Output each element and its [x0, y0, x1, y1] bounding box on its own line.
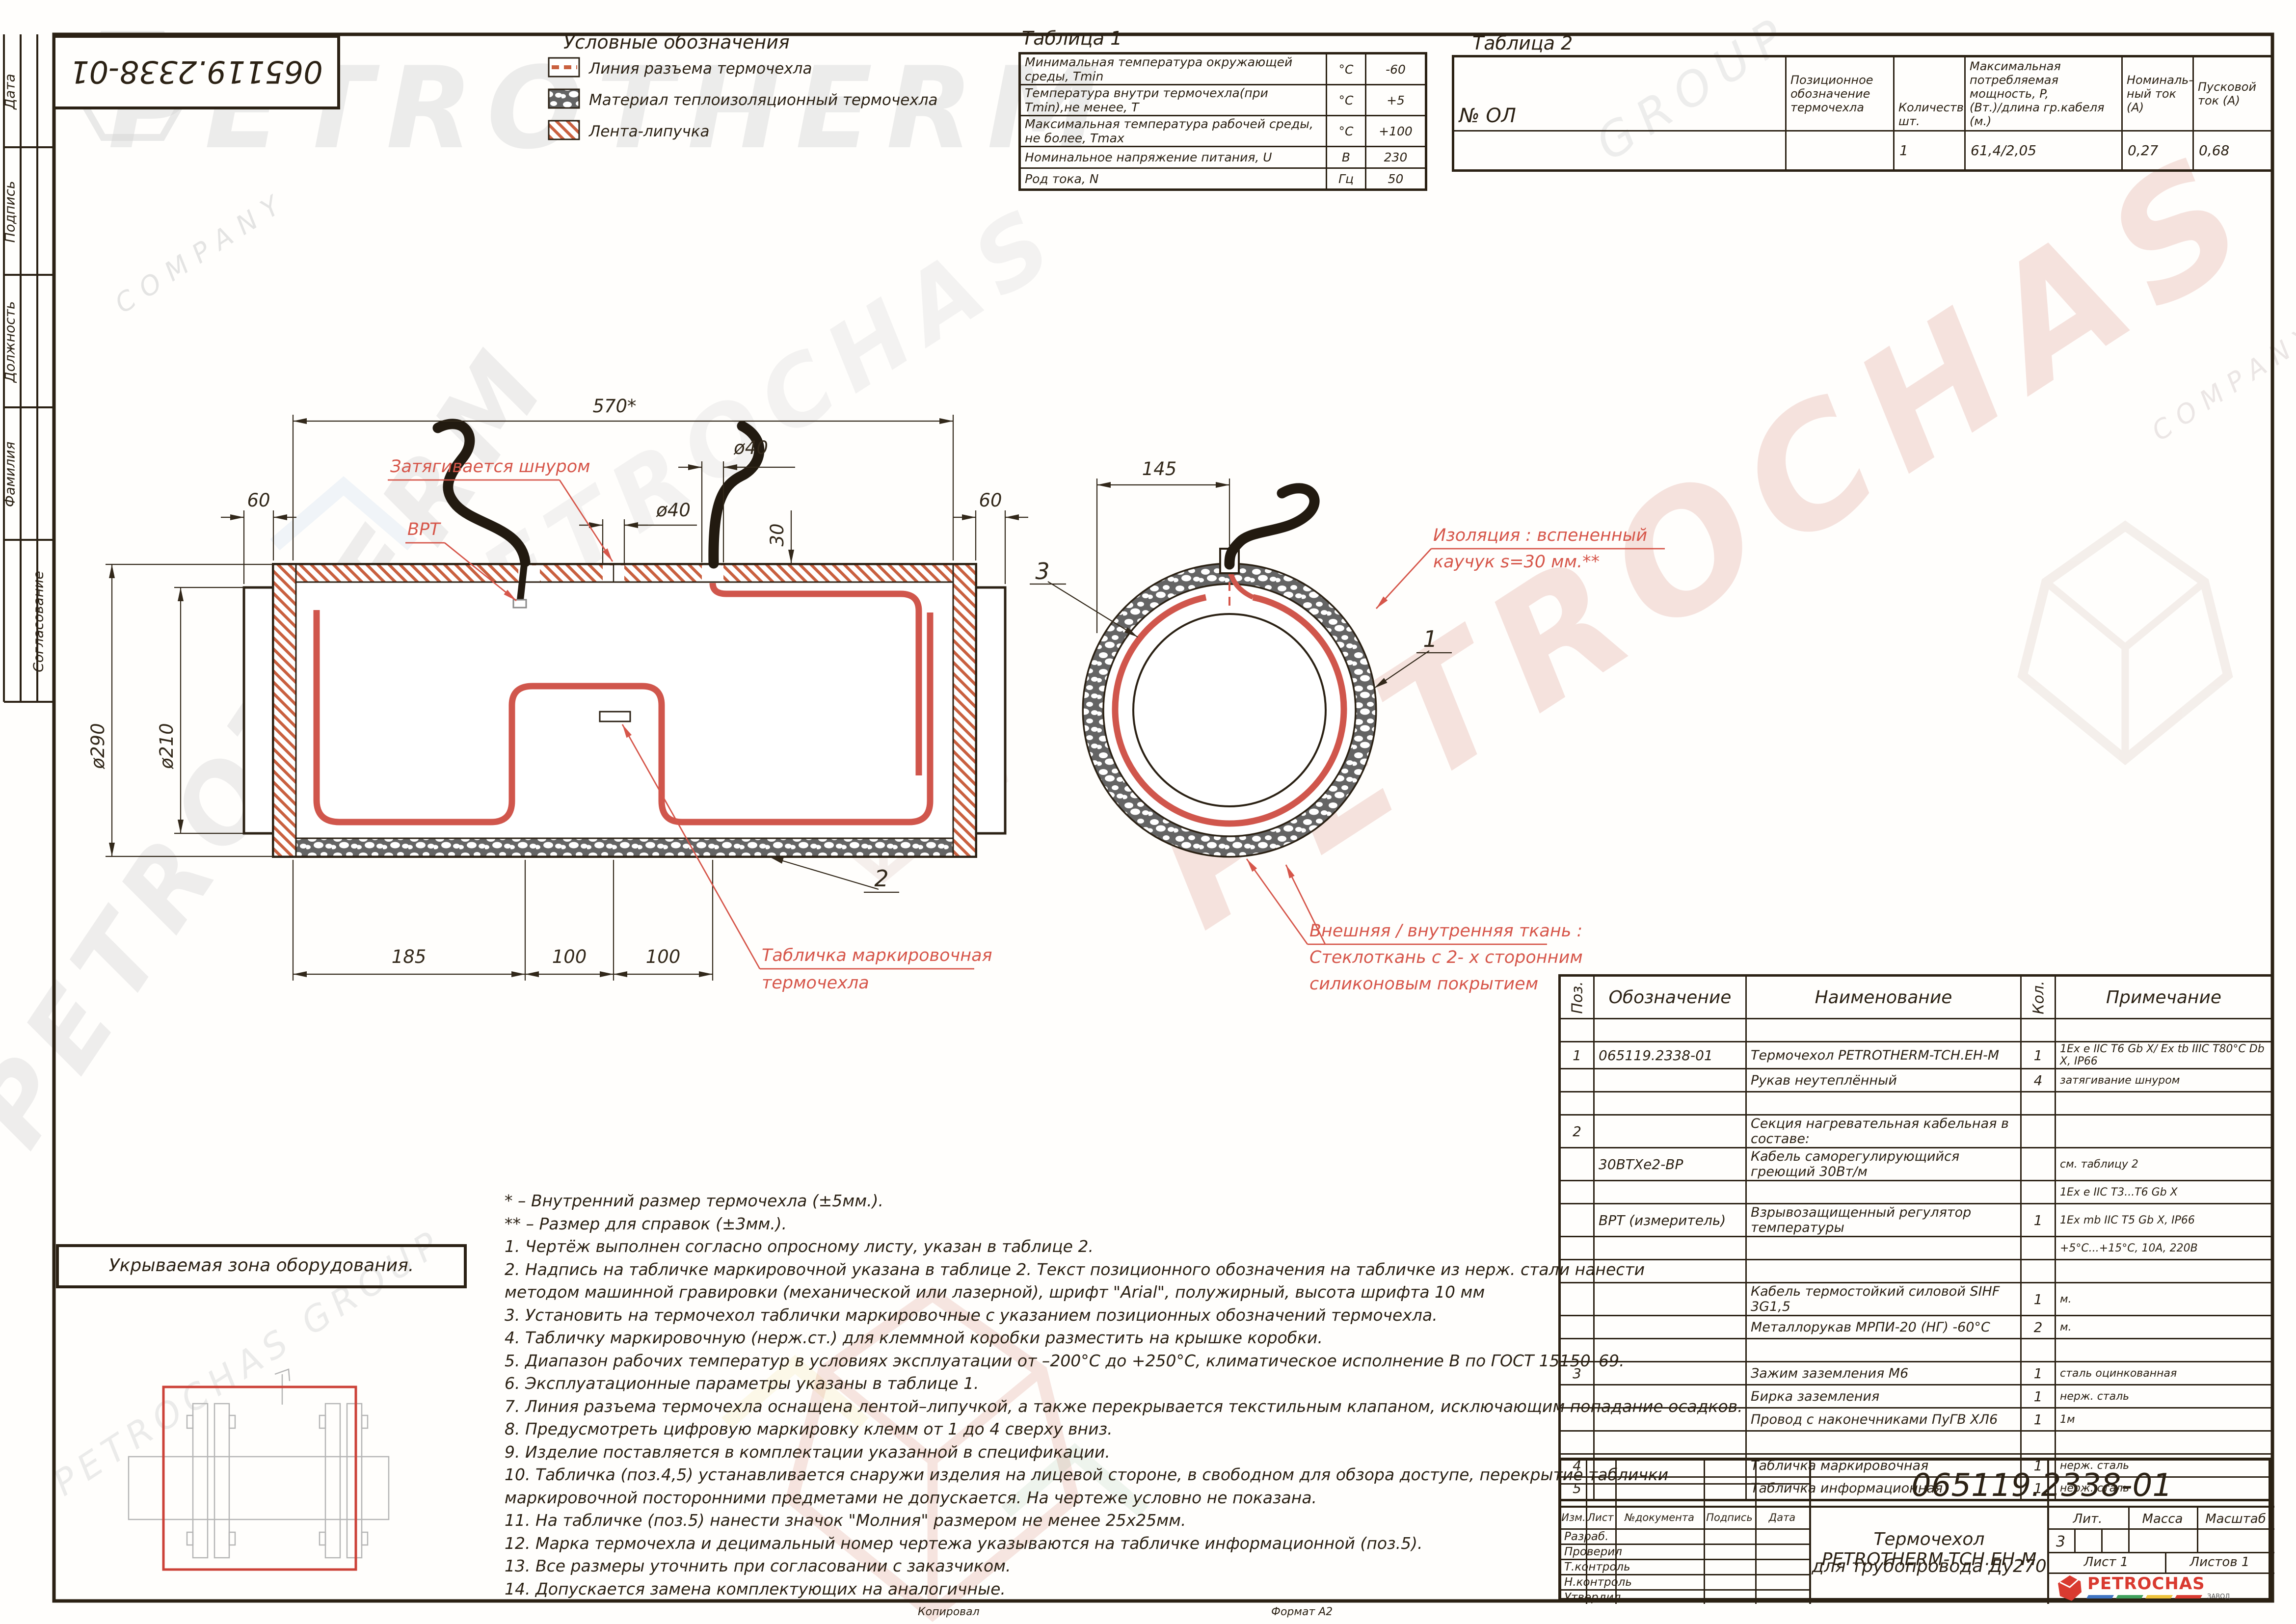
- tb-sheets: Листов 1: [2165, 1555, 2274, 1570]
- spec-row: Бирка заземления 1 нерж. сталь: [1560, 1385, 2273, 1408]
- tb-row-ncontrol: Н.контроль: [1564, 1576, 1632, 1589]
- spec-note: м.: [2056, 1283, 2273, 1316]
- spec-qty: 1: [2021, 1362, 2056, 1385]
- spec-qty: 1: [2021, 1408, 2056, 1431]
- spec-note: 1Ex mb IIC T5 Gb X, IP66: [2056, 1204, 2273, 1237]
- table1-value: -60: [1366, 53, 1426, 85]
- note-line: ** – Размер для справок (±3мм.).: [505, 1213, 1565, 1236]
- spec-note: [2056, 1115, 2273, 1148]
- legend-item-velcro: Лента-липучка: [589, 123, 710, 140]
- logo-dash-yellow: [2145, 1595, 2173, 1598]
- table2-header-current: Номиналь- ный ток (А): [2122, 56, 2193, 131]
- drawing-sheet: PETROTHERM Pt COMPANY PETROTHERM PETROCH…: [0, 0, 2296, 1624]
- spec-designation: [1594, 1316, 1746, 1339]
- margin-label-name: Фамилия: [2, 421, 18, 529]
- spec-name: [1746, 1260, 2021, 1283]
- spec-qty: [2021, 1339, 2056, 1362]
- spec-qty: 2: [2021, 1316, 2056, 1339]
- spec-header-note: Примечание: [2056, 976, 2273, 1019]
- margin-label-signature: Подпись: [2, 158, 18, 266]
- table1-unit: В: [1327, 147, 1366, 168]
- annotation-fabric-1: Внешняя / внутренняя ткань :: [1309, 921, 1582, 941]
- spec-qty: 1: [2021, 1385, 2056, 1408]
- dim-collar-left: 60: [247, 490, 270, 511]
- spec-name: Кабель саморегулирующийся греющий 30Вт/м: [1746, 1148, 2021, 1181]
- spec-note: [2056, 1092, 2273, 1115]
- note-line: маркировочной посторонними предметами не…: [505, 1487, 1565, 1510]
- spec-row: 1 065119.2338-01 Термочехол PETROTHERM-T…: [1560, 1042, 2273, 1069]
- spec-qty: 4: [2021, 1069, 2056, 1092]
- spec-name: [1746, 1181, 2021, 1204]
- dim-outer-dia: ø290: [87, 723, 108, 769]
- table1-row: Максимальная температура рабочей среды, …: [1020, 116, 1426, 147]
- table1-unit: Гц: [1327, 168, 1366, 190]
- table1-value: +100: [1366, 116, 1426, 147]
- tb-doc-number: 065119.2338-01: [1809, 1467, 2274, 1504]
- legend-title: Условные обозначения: [563, 31, 790, 53]
- tb-col-izm: Изм.: [1561, 1512, 1586, 1523]
- table1-param: Род тока, N: [1020, 168, 1327, 190]
- note-line: 10. Табличка (поз.4,5) устанавливается с…: [505, 1464, 1565, 1487]
- tb-lit-value: 3: [2047, 1533, 2074, 1550]
- table1-row: Род тока, N Гц 50: [1020, 168, 1426, 190]
- spec-designation: [1594, 1069, 1746, 1092]
- spec-name: Взрывозащищенный регулятор температуры: [1746, 1204, 2021, 1237]
- spec-pos: [1560, 1204, 1594, 1237]
- dim-length: 570*: [592, 396, 636, 417]
- spec-pos: [1560, 1181, 1594, 1204]
- watermark-gem: [2023, 526, 2228, 759]
- spec-designation: 30ВТХе2-ВР: [1594, 1148, 1746, 1181]
- covered-zone-diagram: [57, 1246, 465, 1570]
- spec-pos: 1: [1560, 1042, 1594, 1069]
- note-line: * – Внутренний размер термочехла (±5мм.)…: [505, 1190, 1565, 1213]
- spec-pos: 2: [1560, 1115, 1594, 1148]
- spec-designation: [1594, 1283, 1746, 1316]
- vrt-probe-lead: [520, 564, 524, 600]
- spec-qty: 1: [2021, 1283, 2056, 1316]
- spec-name: Кабель термостойкий силовой SIHF 3G1,5: [1746, 1283, 2021, 1316]
- spec-qty: [2021, 1260, 2056, 1283]
- table1-row: Номинальное напряжение питания, U В 230: [1020, 147, 1426, 168]
- cover-body: [273, 564, 976, 856]
- spec-row: Кабель термостойкий силовой SIHF 3G1,5 1…: [1560, 1283, 2273, 1316]
- spec-note: затягивание шнуром: [2056, 1069, 2273, 1092]
- spec-header-designation: Обозначение: [1594, 976, 1746, 1019]
- spec-row: 1Ex e IIC T3...T6 Gb X: [1560, 1181, 2273, 1204]
- legend-item-insulation: Материал теплоизоляционный термочехла: [589, 91, 938, 109]
- dim-seg3: 100: [646, 946, 681, 967]
- velcro-band: [273, 564, 976, 582]
- tb-col-sign: Подпись: [1704, 1512, 1755, 1523]
- dim-gap: ø40: [656, 500, 691, 521]
- doc-number-top: 065119.2338-01: [54, 36, 339, 108]
- spec-name: [1746, 1237, 2021, 1260]
- note-line: 5. Диапазон рабочих температур в условия…: [505, 1350, 1565, 1373]
- spec-pos: 3: [1560, 1362, 1594, 1385]
- note-line: 11. На табличке (поз.5) нанести значок "…: [505, 1509, 1565, 1532]
- spec-name: Термочехол PETROTHERM-TCH.EH-М: [1746, 1042, 2021, 1069]
- note-line: 1. Чертёж выполнен согласно опросному ли…: [505, 1235, 1565, 1258]
- table2-header-designation: Позиционное обозначение термочехла: [1786, 56, 1894, 131]
- spec-pos: [1560, 1431, 1594, 1454]
- tb-row-approved: Утвердил: [1564, 1591, 1621, 1604]
- spec-note: 1м: [2056, 1408, 2273, 1431]
- tb-row-developed: Разраб.: [1564, 1530, 1608, 1543]
- annotation-insulation-1: Изоляция : вспененный: [1433, 526, 1647, 545]
- spec-qty: [2021, 1148, 2056, 1181]
- table1-value: 230: [1366, 147, 1426, 168]
- table2-header-start-current: Пусковой ток (А): [2193, 56, 2273, 131]
- legend-swatches: [549, 58, 579, 139]
- footer-copied: Копировал: [918, 1606, 980, 1618]
- spec-pos: [1560, 1069, 1594, 1092]
- dim-hole-offset: 30: [767, 523, 788, 546]
- table2: № ОЛ Позиционное обозначение термочехла …: [1452, 55, 2274, 172]
- legend-item-split-line: Линия разъема термочехла: [589, 60, 812, 78]
- annotation-cord: Затягивается шнуром: [390, 457, 590, 477]
- balloon-1: 1: [1423, 626, 1437, 652]
- spec-row: Провод с наконечниками ПуГВ ХЛ6 1 1м: [1560, 1408, 2273, 1431]
- spec-qty: [2021, 1092, 2056, 1115]
- spec-designation: 065119.2338-01: [1594, 1042, 1746, 1069]
- spec-pos: [1560, 1408, 1594, 1431]
- spec-qty: [2021, 1019, 2056, 1042]
- legend-insulation-swatch: [549, 89, 579, 108]
- spec-name: Металлорукав МРПИ-20 (НГ) -60°С: [1746, 1316, 2021, 1339]
- spec-pos: [1560, 1237, 1594, 1260]
- spec-name: Рукав неутеплённый: [1746, 1069, 2021, 1092]
- tb-scale-label: Масштаб: [2197, 1512, 2274, 1526]
- left-end-velcro: [273, 564, 296, 856]
- spec-header-qty: Кол.: [2021, 976, 2056, 1019]
- annotation-plate-1: Табличка маркировочная: [762, 946, 992, 965]
- spec-note: [2056, 1260, 2273, 1283]
- spec-name: Зажим заземления М6: [1746, 1362, 2021, 1385]
- spec-qty: [2021, 1181, 2056, 1204]
- spec-note: см. таблицу 2: [2056, 1148, 2273, 1181]
- insulation-band: [296, 838, 953, 856]
- spec-name: [1746, 1092, 2021, 1115]
- vrt-sensor-tip: [513, 600, 526, 608]
- spec-name: [1746, 1431, 2021, 1454]
- spec-qty: [2021, 1115, 2056, 1148]
- table2-cell-start-current: 0,68: [2193, 131, 2273, 171]
- table2-title: Таблица 2: [1472, 32, 1573, 54]
- spec-pos: [1560, 1385, 1594, 1408]
- logo-sub: ЗАВОД: [2207, 1593, 2230, 1600]
- tb-row-checked: Проверил: [1564, 1545, 1622, 1558]
- note-line: 12. Марка термочехла и децимальный номер…: [505, 1532, 1565, 1555]
- tb-sheet: Лист 1: [2047, 1555, 2165, 1570]
- tb-title-line2: для трубопровода Ду270: [1811, 1556, 2047, 1576]
- spec-row: 3 Зажим заземления М6 1 сталь оцинкованн…: [1560, 1362, 2273, 1385]
- dim-collar-right: 60: [979, 490, 1002, 511]
- table1: Минимальная температура окружающей среды…: [1018, 52, 1427, 191]
- tb-lit-label: Лит.: [2047, 1512, 2128, 1526]
- spec-pos: [1560, 1260, 1594, 1283]
- tb-row-tcontrol: Т.контроль: [1564, 1561, 1630, 1573]
- note-line: 14. Допускается замена комплектующих на …: [505, 1578, 1565, 1601]
- annotation-plate-2: термочехла: [762, 973, 869, 993]
- right-end-velcro: [953, 564, 976, 856]
- spec-qty: 1: [2021, 1204, 2056, 1237]
- spec-pos: [1560, 1339, 1594, 1362]
- table1-unit: °С: [1327, 116, 1366, 147]
- logo-dash-blue: [2086, 1595, 2114, 1598]
- spec-pos: [1560, 1148, 1594, 1181]
- note-line: 13. Все размеры уточнить при согласовани…: [505, 1555, 1565, 1578]
- left-sleeve: [244, 587, 273, 833]
- spec-name: Секция нагревательная кабельная в состав…: [1746, 1115, 2021, 1148]
- margin-label-approval: Согласование: [30, 548, 47, 695]
- spec-designation: [1594, 1385, 1746, 1408]
- spec-row: 30ВТХе2-ВР Кабель саморегулирующийся гре…: [1560, 1148, 2273, 1181]
- spec-name: Бирка заземления: [1746, 1385, 2021, 1408]
- spec-designation: ВРТ (измеритель): [1594, 1204, 1746, 1237]
- table1-value: 50: [1366, 168, 1426, 190]
- spec-row: ВРТ (измеритель) Взрывозащищенный регуля…: [1560, 1204, 2273, 1237]
- tb-col-doc: №документа: [1615, 1512, 1704, 1523]
- spec-name: [1746, 1019, 2021, 1042]
- note-line: 9. Изделие поставляется в комплектации у…: [505, 1441, 1565, 1464]
- spec-qty: [2021, 1237, 2056, 1260]
- footer-format: Формат А2: [1271, 1606, 1333, 1618]
- table1-unit: °С: [1327, 53, 1366, 85]
- spec-designation: [1594, 1181, 1746, 1204]
- spec-note: м.: [2056, 1316, 2273, 1339]
- table2-cell-designation: [1786, 131, 1894, 171]
- spec-row: +5°С...+15°С, 10А, 220В: [1560, 1237, 2273, 1260]
- spec-designation: [1594, 1019, 1746, 1042]
- spec-row: [1560, 1260, 2273, 1283]
- tb-col-date: Дата: [1755, 1512, 1809, 1523]
- spec-designation: [1594, 1092, 1746, 1115]
- spec-designation: [1594, 1362, 1746, 1385]
- table1-value: +5: [1366, 85, 1426, 116]
- tb-col-list: Лист: [1586, 1512, 1615, 1523]
- marking-plate: [600, 712, 630, 721]
- spec-note: 1Ex e IIC T3...T6 Gb X: [2056, 1181, 2273, 1204]
- table2-header-power: Максимальная потребляемая мощность, P, (…: [1965, 56, 2122, 131]
- spec-qty: [2021, 1431, 2056, 1454]
- spec-name: Провод с наконечниками ПуГВ ХЛ6: [1746, 1408, 2021, 1431]
- balloon-3: 3: [1035, 558, 1049, 585]
- annotation-vrt: ВРТ: [407, 520, 441, 539]
- table1-row: Минимальная температура окружающей среды…: [1020, 53, 1426, 85]
- annotation-insulation-2: каучук s=30 мм.**: [1433, 552, 1600, 572]
- note-line: 3. Установить на термочехол таблички мар…: [505, 1304, 1565, 1327]
- table1-unit: °С: [1327, 85, 1366, 116]
- margin-label-position: Должность: [2, 288, 18, 396]
- logo-dash-green: [2116, 1595, 2143, 1598]
- table2-row-label: № ОЛ: [1453, 56, 1786, 131]
- spec-designation: [1594, 1115, 1746, 1148]
- spec-table: Поз. Обозначение Наименование Кол. Приме…: [1558, 974, 2274, 1501]
- spec-row: Металлорукав МРПИ-20 (НГ) -60°С 2 м.: [1560, 1316, 2273, 1339]
- note-line: 7. Линия разъема термочехла оснащена лен…: [505, 1395, 1565, 1418]
- table2-cell-current: 0,27: [2122, 131, 2193, 171]
- table2-cell-ol: [1453, 131, 1786, 171]
- note-line: 6. Эксплуатационные параметры указаны в …: [505, 1372, 1565, 1395]
- spec-designation: [1594, 1260, 1746, 1283]
- spec-designation: [1594, 1339, 1746, 1362]
- spec-pos: [1560, 1019, 1594, 1042]
- covered-zone-title: Укрываемая зона оборудования.: [57, 1255, 465, 1276]
- spec-qty: 1: [2021, 1042, 2056, 1069]
- margin-label-date: Дата: [2, 38, 18, 146]
- spec-row: Рукав неутеплённый 4 затягивание шнуром: [1560, 1069, 2273, 1092]
- legend-velcro-swatch: [549, 121, 579, 139]
- petrochas-gem-icon: [2057, 1574, 2082, 1602]
- spec-designation: [1594, 1237, 1746, 1260]
- spec-designation: [1594, 1408, 1746, 1431]
- spec-row: [1560, 1431, 2273, 1454]
- table1-param: Температура внутри термочехла(при Tmin),…: [1020, 85, 1327, 116]
- spec-note: 1Ex e IIC T6 Gb X/ Ex tb IIIC T80°C Db X…: [2056, 1042, 2273, 1069]
- spec-note: [2056, 1339, 2273, 1362]
- balloon-2: 2: [874, 865, 888, 892]
- dim-seg2: 100: [552, 946, 587, 967]
- table2-header-qty: Количество, шт.: [1894, 56, 1965, 131]
- spec-row: [1560, 1339, 2273, 1362]
- table2-cell-power: 61,4/2,05: [1965, 131, 2122, 171]
- spec-designation: [1594, 1431, 1746, 1454]
- tb-mass-label: Масса: [2128, 1512, 2197, 1526]
- logo-text: PETROCHAS: [2087, 1576, 2230, 1591]
- spec-pos: [1560, 1092, 1594, 1115]
- table2-cell-qty: 1: [1894, 131, 1965, 171]
- title-block: Изм. Лист №документа Подпись Дата Разраб…: [1558, 1458, 2271, 1601]
- watermark-company: COMPANY: [109, 185, 294, 319]
- table1-row: Температура внутри термочехла(при Tmin),…: [1020, 85, 1426, 116]
- spec-note: [2056, 1019, 2273, 1042]
- spec-header-name: Наименование: [1746, 976, 2021, 1019]
- power-cable-cs: [1229, 488, 1314, 564]
- dim-seg1: 185: [392, 946, 427, 967]
- spec-note: сталь оцинкованная: [2056, 1362, 2273, 1385]
- spec-row: [1560, 1092, 2273, 1115]
- dim-cs-width: 145: [1142, 458, 1177, 479]
- right-sleeve: [976, 587, 1005, 833]
- spec-note: [2056, 1431, 2273, 1454]
- spec-header-pos: Поз.: [1560, 976, 1594, 1019]
- spec-note: нерж. сталь: [2056, 1385, 2273, 1408]
- table1-title: Таблица 1: [1022, 27, 1122, 49]
- note-line: 2. Надпись на табличке маркировочной ука…: [505, 1258, 1565, 1281]
- spec-row: [1560, 1019, 2273, 1042]
- spec-pos: [1560, 1316, 1594, 1339]
- spec-row: 2 Секция нагревательная кабельная в сост…: [1560, 1115, 2273, 1148]
- dim-collar-dia: ø210: [156, 723, 177, 769]
- spec-note: +5°С...+15°С, 10А, 220В: [2056, 1237, 2273, 1260]
- dim-hole: ø40: [733, 437, 768, 458]
- note-line: 8. Предусмотреть цифровую маркировку кле…: [505, 1418, 1565, 1441]
- annotation-fabric-3: силиконовым покрытием: [1309, 974, 1538, 994]
- note-line: 4. Табличку маркировочную (нерж.ст.) для…: [505, 1327, 1565, 1350]
- annotation-fabric-2: Стеклоткань с 2- х сторонним: [1309, 948, 1583, 967]
- petrochas-logo: PETROCHAS ЗАВОД: [2057, 1574, 2268, 1602]
- note-line: методом машинной гравировки (механическо…: [505, 1281, 1565, 1304]
- table1-param: Номинальное напряжение питания, U: [1020, 147, 1327, 168]
- spec-pos: [1560, 1283, 1594, 1316]
- spec-name: [1746, 1339, 2021, 1362]
- logo-dash-red: [2175, 1595, 2202, 1598]
- table1-param: Максимальная температура рабочей среды, …: [1020, 116, 1327, 147]
- notes-block: * – Внутренний размер термочехла (±5мм.)…: [505, 1190, 1565, 1600]
- table1-param: Минимальная температура окружающей среды…: [1020, 53, 1327, 85]
